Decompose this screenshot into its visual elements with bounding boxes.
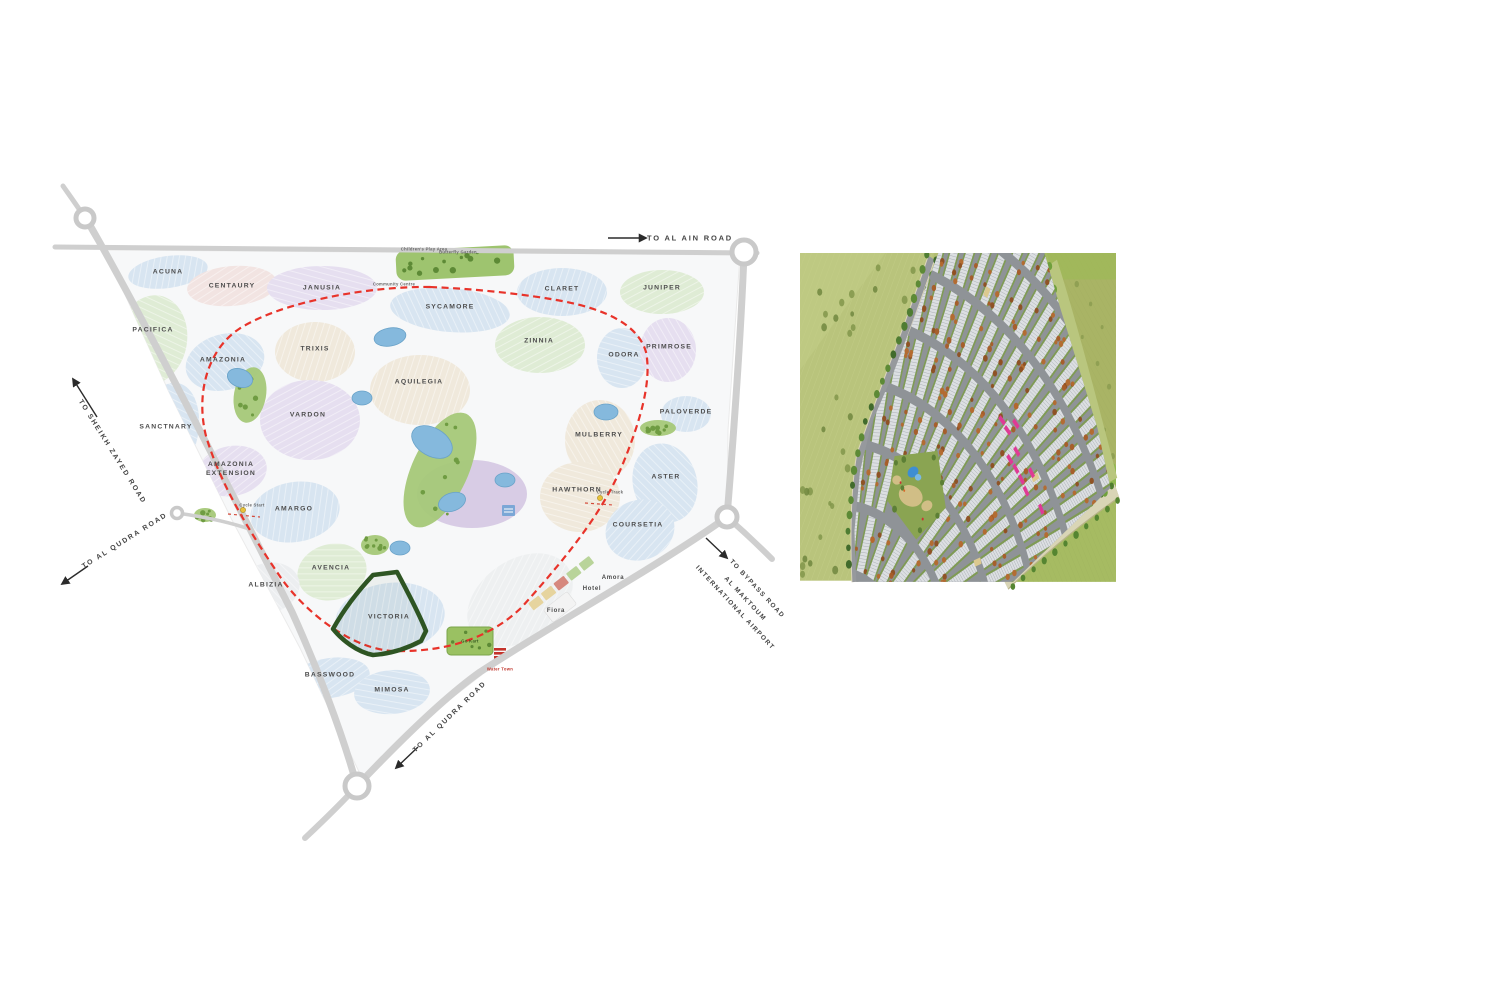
tree-dot xyxy=(460,256,463,259)
master-plan-map xyxy=(0,0,800,880)
roundabout xyxy=(76,209,94,227)
playground-equipment xyxy=(922,518,924,521)
tree-dot xyxy=(407,265,412,270)
street-tree xyxy=(1143,436,1148,444)
townhouse-row xyxy=(1155,490,1191,516)
garden-strip xyxy=(1119,534,1155,550)
field-tree xyxy=(1107,384,1111,390)
townhouse-row xyxy=(900,592,939,627)
street-tree xyxy=(1127,353,1132,360)
street-tree xyxy=(1130,424,1135,431)
road-tree xyxy=(855,449,860,457)
garden-strip xyxy=(949,593,984,614)
street-tree xyxy=(1119,394,1123,400)
street-tree xyxy=(918,618,923,626)
park-tree xyxy=(935,513,939,519)
garden-strip xyxy=(1137,420,1169,446)
garden-strip xyxy=(1143,439,1176,464)
tree-dot xyxy=(433,507,437,511)
ghost-tree xyxy=(828,501,831,506)
townhouse-row xyxy=(995,599,1033,620)
field-tree xyxy=(1101,325,1104,329)
tree-dot xyxy=(494,257,500,263)
road-tree xyxy=(859,433,865,441)
street-tree xyxy=(1010,614,1014,620)
garden-strip xyxy=(950,603,986,619)
tree-dot xyxy=(663,428,666,431)
street-tree xyxy=(1144,396,1148,402)
cyclist-icon xyxy=(597,495,602,500)
street-tree xyxy=(1120,386,1125,393)
unit-divisions xyxy=(952,606,986,628)
townhouse-row xyxy=(1163,531,1200,553)
street-tree xyxy=(948,589,953,597)
path-tree xyxy=(1084,523,1088,529)
street-tree xyxy=(1136,377,1142,386)
ghost-tree xyxy=(802,555,807,562)
house-row xyxy=(1117,369,1155,414)
water-town-icon xyxy=(502,505,515,516)
tree-dot xyxy=(464,253,469,258)
ghost-tree xyxy=(821,426,825,432)
garden-strip xyxy=(993,587,1029,605)
road-tree xyxy=(874,390,880,398)
field-tree xyxy=(1089,302,1092,307)
townhouse-row xyxy=(947,584,984,612)
ghost-tree xyxy=(800,486,805,494)
road-tree xyxy=(847,511,853,519)
street-tree xyxy=(1121,522,1126,529)
garden-strip xyxy=(1126,390,1158,418)
townhouse-row xyxy=(1119,374,1153,410)
street-tree xyxy=(1129,577,1133,582)
garden-strip xyxy=(1115,514,1151,533)
ghost-tree xyxy=(823,311,828,318)
lake xyxy=(390,541,410,555)
water-town-logo xyxy=(494,648,506,651)
house-row xyxy=(1118,531,1158,566)
street-tree xyxy=(960,587,965,595)
garden-strip xyxy=(1123,383,1154,413)
street-tree xyxy=(925,582,929,588)
street-tree xyxy=(953,626,958,634)
townhouse-row xyxy=(1112,356,1145,394)
house-row xyxy=(1143,445,1183,485)
street-tree xyxy=(1163,427,1169,436)
garden-strip xyxy=(1121,546,1157,562)
roundabout xyxy=(345,774,369,798)
street-tree xyxy=(1147,457,1151,463)
garden-strip xyxy=(903,601,940,629)
unit-divisions xyxy=(1113,357,1145,393)
house-row xyxy=(1138,425,1177,466)
ghost-tree xyxy=(849,290,855,298)
garden-strip xyxy=(897,579,931,615)
ghost-tree xyxy=(839,299,844,307)
street-tree xyxy=(1123,541,1129,549)
garden-strip xyxy=(1165,541,1200,556)
street-tree xyxy=(1129,575,1134,582)
pool-shallow xyxy=(915,474,921,481)
tree-dot xyxy=(646,428,651,433)
house-row xyxy=(1154,486,1193,522)
street-tree xyxy=(1167,508,1173,516)
park-tree xyxy=(894,460,898,466)
tree-dot xyxy=(364,538,368,542)
garden-strip xyxy=(1122,555,1158,569)
townhouse-row xyxy=(1160,510,1196,534)
tree-dot xyxy=(655,425,660,430)
townhouse-row xyxy=(904,615,944,642)
tree-dot xyxy=(453,426,457,430)
street-tree xyxy=(1144,464,1149,471)
townhouse-row xyxy=(1145,450,1181,480)
road-tree xyxy=(896,336,902,344)
park-tree xyxy=(901,456,906,463)
path-tree xyxy=(1105,506,1110,513)
park-tree xyxy=(892,506,897,513)
street-tree xyxy=(903,622,909,631)
house-row xyxy=(903,610,945,646)
cluster-hatch xyxy=(260,380,360,460)
roundabout xyxy=(732,240,756,264)
arrow-al-qudra-left xyxy=(62,566,88,584)
unit-divisions xyxy=(1135,411,1168,443)
street-tree xyxy=(967,607,971,612)
unit-divisions xyxy=(1162,511,1196,534)
roundabout xyxy=(172,508,183,519)
ghost-tree xyxy=(833,314,838,321)
tree-dot xyxy=(433,267,439,273)
unit-divisions xyxy=(996,600,1030,620)
street-tree xyxy=(1041,590,1046,598)
street-tree xyxy=(1133,495,1138,502)
road-tree xyxy=(851,466,857,475)
tree-dot xyxy=(456,460,460,464)
unit-divisions xyxy=(1117,516,1151,540)
tree-dot xyxy=(478,646,481,649)
road-tree xyxy=(885,365,890,373)
street-tree xyxy=(907,624,912,631)
street-tree xyxy=(905,600,911,609)
park-tree xyxy=(940,480,944,486)
street-tree xyxy=(1125,520,1131,528)
road-tree xyxy=(850,482,855,489)
tree-dot xyxy=(451,640,454,643)
tree-dot xyxy=(379,544,383,548)
lake xyxy=(352,391,372,405)
road-tree xyxy=(846,560,852,569)
road-tree xyxy=(901,322,907,331)
page-canvas: ACUNA CENTAURY JANUSIA SYCAMORE CLARET J… xyxy=(0,0,1500,1000)
garden-strip xyxy=(952,615,988,631)
garden-strip xyxy=(1124,567,1160,581)
park-tree xyxy=(918,527,922,533)
garden-strip xyxy=(1118,372,1149,402)
garden-strip xyxy=(994,597,1030,611)
garden-strip xyxy=(1145,448,1179,471)
tree-dot xyxy=(402,268,406,272)
road-tree xyxy=(863,418,868,425)
roundabout xyxy=(717,507,737,527)
garden-strip xyxy=(1153,479,1187,500)
garden-strip xyxy=(1163,529,1198,544)
tree-dot xyxy=(421,257,424,260)
street-tree xyxy=(904,624,909,630)
house-row xyxy=(1133,409,1171,449)
townhouse-row xyxy=(1127,392,1162,427)
townhouse-row xyxy=(951,606,988,629)
tree-dot xyxy=(487,643,491,647)
ghost-tree xyxy=(902,296,908,304)
garden-strip xyxy=(1116,365,1146,397)
cyclist-icon xyxy=(240,507,245,512)
street-tree xyxy=(1183,478,1189,486)
garden-strip xyxy=(1162,520,1197,537)
unit-divisions xyxy=(901,592,938,625)
field-tree xyxy=(1075,281,1079,287)
road-tree xyxy=(846,528,851,535)
street-tree xyxy=(1133,373,1139,381)
street-tree xyxy=(1161,518,1166,525)
cluster-site-plan xyxy=(800,253,1485,748)
townhouse-row xyxy=(1115,516,1152,542)
garden-strip xyxy=(1037,581,1073,597)
street-tree xyxy=(1152,429,1157,436)
street-tree xyxy=(1118,458,1123,465)
house-row xyxy=(1125,388,1163,431)
path-tree xyxy=(1115,497,1120,504)
street-tree xyxy=(940,625,944,631)
house-row xyxy=(1114,510,1153,543)
townhouse-row xyxy=(1140,430,1175,461)
townhouse-row xyxy=(1133,411,1168,444)
tree-dot xyxy=(206,512,209,515)
garden-strip xyxy=(1158,499,1193,518)
tree-dot xyxy=(443,475,447,479)
street-tree xyxy=(1019,589,1024,596)
path-tree xyxy=(1063,540,1067,546)
street-tree xyxy=(1122,431,1127,438)
path-tree xyxy=(1021,575,1026,582)
street-tree xyxy=(1003,597,1007,603)
house-row xyxy=(1159,505,1197,537)
lake xyxy=(495,473,515,487)
street-tree xyxy=(1168,448,1174,456)
street-tree xyxy=(1159,476,1164,484)
tree-dot xyxy=(446,513,449,516)
street-tree xyxy=(1133,398,1138,406)
path-tree xyxy=(1073,531,1078,539)
ghost-tree xyxy=(832,566,838,575)
road-tree xyxy=(919,265,925,274)
garden-strip xyxy=(1113,505,1148,526)
tree-dot xyxy=(365,545,369,549)
tree-dot xyxy=(251,413,254,416)
ghost-tree xyxy=(800,571,805,578)
lake xyxy=(594,404,618,420)
road-tree xyxy=(846,544,851,551)
street-tree xyxy=(962,608,967,615)
cluster-hatch xyxy=(620,270,704,314)
townhouse-row xyxy=(1119,537,1156,561)
street-tree xyxy=(1165,510,1170,517)
tree-dot xyxy=(238,403,243,408)
ghost-tree xyxy=(911,267,916,274)
garden-strip xyxy=(946,581,981,602)
street-tree xyxy=(1143,512,1149,520)
house-row xyxy=(1122,553,1161,584)
tree-dot xyxy=(375,539,378,542)
street-tree xyxy=(1189,528,1194,535)
garden-strip xyxy=(1130,401,1162,429)
street-tree xyxy=(1180,509,1186,517)
street-tree xyxy=(1167,495,1171,501)
street-tree xyxy=(1147,477,1153,485)
tree-dot xyxy=(383,546,387,550)
ghost-tree xyxy=(850,311,854,316)
street-tree xyxy=(1180,509,1186,517)
street-tree xyxy=(1140,399,1145,406)
garden-strip xyxy=(899,590,936,618)
street-tree xyxy=(1015,599,1019,604)
path-tree xyxy=(1095,515,1099,521)
road-tree xyxy=(911,294,917,303)
path-tree xyxy=(1031,566,1035,572)
garden-strip xyxy=(1155,488,1190,507)
street-tree xyxy=(999,598,1004,605)
tree-dot xyxy=(421,490,426,495)
street-tree xyxy=(923,609,928,616)
ghost-tree xyxy=(800,562,805,570)
ghost-tree xyxy=(808,560,813,566)
ghost-tree xyxy=(876,264,881,271)
tree-dot xyxy=(372,544,375,547)
garden-strip xyxy=(1148,459,1182,482)
arrow-al-qudra-bottom xyxy=(396,747,418,768)
path-tree xyxy=(1042,557,1047,564)
townhouse-row xyxy=(1123,558,1161,579)
house-row xyxy=(1163,526,1201,555)
tree-dot xyxy=(408,262,412,266)
street-tree xyxy=(1136,493,1141,501)
street-tree xyxy=(974,596,979,603)
path-tree xyxy=(1011,583,1016,590)
arrow-sheikh-zayed-road xyxy=(73,379,97,417)
garden-strip xyxy=(906,624,945,643)
street-tree xyxy=(1133,346,1139,355)
tree-dot xyxy=(664,424,668,428)
road-tree xyxy=(848,496,854,504)
street-tree xyxy=(1133,463,1138,471)
road-tree xyxy=(891,350,897,358)
ghost-tree xyxy=(873,286,878,293)
street-tree xyxy=(1166,473,1170,479)
street-tree xyxy=(1063,583,1067,589)
cluster-hatch xyxy=(267,266,377,310)
cluster-hatch xyxy=(495,317,585,373)
playground-equipment xyxy=(900,481,902,484)
tree-dot xyxy=(243,404,248,409)
tree-dot xyxy=(470,645,473,648)
tree-dot xyxy=(417,271,422,276)
street-tree xyxy=(898,609,903,616)
street-tree xyxy=(1190,528,1195,535)
garden-strip xyxy=(1133,409,1165,435)
garden-strip xyxy=(1150,468,1184,489)
unit-divisions xyxy=(1121,375,1153,409)
path-tree xyxy=(1052,548,1057,556)
unit-divisions xyxy=(1141,431,1174,461)
street-tree xyxy=(999,619,1003,624)
street-tree xyxy=(957,604,963,612)
street-tree xyxy=(1063,581,1069,589)
ghost-tree xyxy=(821,323,827,331)
street-tree xyxy=(1138,445,1144,454)
ghost-tree xyxy=(851,324,856,331)
road-tree xyxy=(869,403,874,410)
street-tree xyxy=(1134,537,1140,545)
unit-divisions xyxy=(1128,393,1161,426)
tree-dot xyxy=(200,510,205,515)
street-tree xyxy=(1158,424,1164,432)
tree-dot xyxy=(442,260,446,264)
road-tree xyxy=(907,308,913,317)
unit-divisions xyxy=(948,584,982,611)
street-tree xyxy=(1133,347,1138,354)
street-tree xyxy=(1132,560,1136,565)
arrow-bypass-road xyxy=(706,538,727,558)
street-tree xyxy=(1117,453,1121,459)
house-row xyxy=(1149,464,1188,502)
house-row xyxy=(994,595,1033,626)
ghost-tree xyxy=(845,464,851,472)
ghost-tree xyxy=(848,413,853,420)
cluster-hatch xyxy=(540,462,620,532)
cluster-hatch xyxy=(275,322,355,382)
tree-dot xyxy=(445,423,448,426)
street-tree xyxy=(1178,532,1182,538)
ghost-tree xyxy=(817,288,822,295)
garden-strip xyxy=(1159,508,1194,525)
ghost-tree xyxy=(834,394,838,400)
tree-dot xyxy=(450,267,456,273)
road-tree xyxy=(916,280,921,287)
ghost-tree xyxy=(847,330,852,337)
unit-divisions xyxy=(1121,537,1155,559)
unit-divisions xyxy=(1165,531,1199,552)
ghost-tree xyxy=(841,448,846,455)
townhouse-row xyxy=(1151,470,1187,498)
garden-strip xyxy=(1117,525,1153,544)
tree-dot xyxy=(253,396,258,401)
unit-divisions xyxy=(1125,558,1159,578)
garden-strip xyxy=(996,609,1032,623)
garden-strip xyxy=(904,613,943,632)
unit-divisions xyxy=(906,615,945,641)
house-row xyxy=(950,600,989,633)
street-tree xyxy=(1138,485,1143,492)
playground-equipment xyxy=(903,489,905,492)
road-tree xyxy=(880,378,885,385)
street-tree xyxy=(1120,367,1126,376)
field-tree xyxy=(1096,361,1100,366)
house-row xyxy=(899,590,940,632)
garden-strip xyxy=(1139,428,1172,453)
ghost-tree xyxy=(818,534,822,540)
park-tree xyxy=(932,454,936,460)
tree-dot xyxy=(208,510,211,513)
